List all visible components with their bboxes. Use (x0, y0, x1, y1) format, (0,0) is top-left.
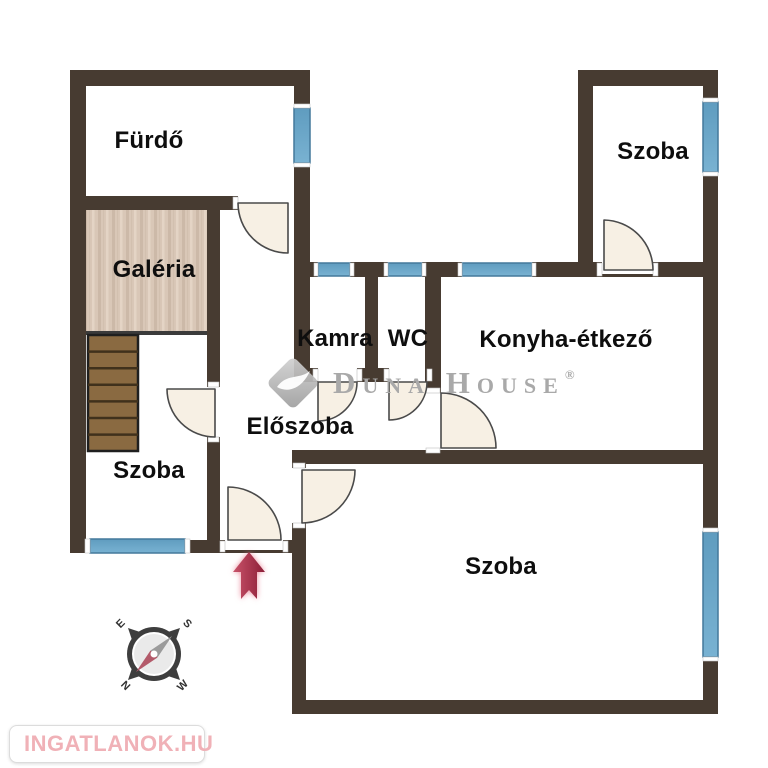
room-label-kamra: Kamra (297, 325, 373, 353)
door-konyha (441, 393, 496, 448)
door-furdo (238, 203, 288, 253)
compass-south-label: S (180, 617, 194, 631)
room-label-szoba-bottom: Szoba (465, 553, 537, 581)
ingatlanok-logo-text: INGATLANOK.HU (24, 731, 213, 757)
floor-plan-drawing: E S N W (0, 0, 768, 768)
compass-icon: E S N W (114, 617, 194, 694)
window-sills (85, 98, 718, 661)
compass-east-label: E (114, 617, 128, 631)
room-label-szoba-top: Szoba (617, 138, 689, 166)
compass-north-label: N (118, 679, 132, 693)
room-label-eloszoba: Előszoba (247, 413, 354, 441)
entrance-arrow-icon (233, 552, 265, 599)
door-szoba-top (604, 220, 653, 270)
door-wc (389, 382, 427, 420)
ingatlanok-logo: INGATLANOK.HU (9, 725, 205, 763)
door-entrance (228, 487, 281, 540)
room-label-szoba-left: Szoba (113, 457, 185, 485)
room-label-konyha: Konyha-étkező (479, 326, 652, 354)
door-szoba-bottom (302, 470, 355, 523)
room-label-wc: WC (388, 325, 428, 353)
floor-plan: E S N W Fürdő Galéria Szoba Kamra WC Kon… (0, 0, 768, 768)
windows (90, 102, 718, 657)
compass-west-label: W (175, 678, 191, 694)
stairs (88, 335, 138, 451)
room-label-galeria: Galéria (113, 256, 196, 284)
room-label-furdo: Fürdő (115, 127, 184, 155)
door-szoba-left (167, 389, 215, 437)
